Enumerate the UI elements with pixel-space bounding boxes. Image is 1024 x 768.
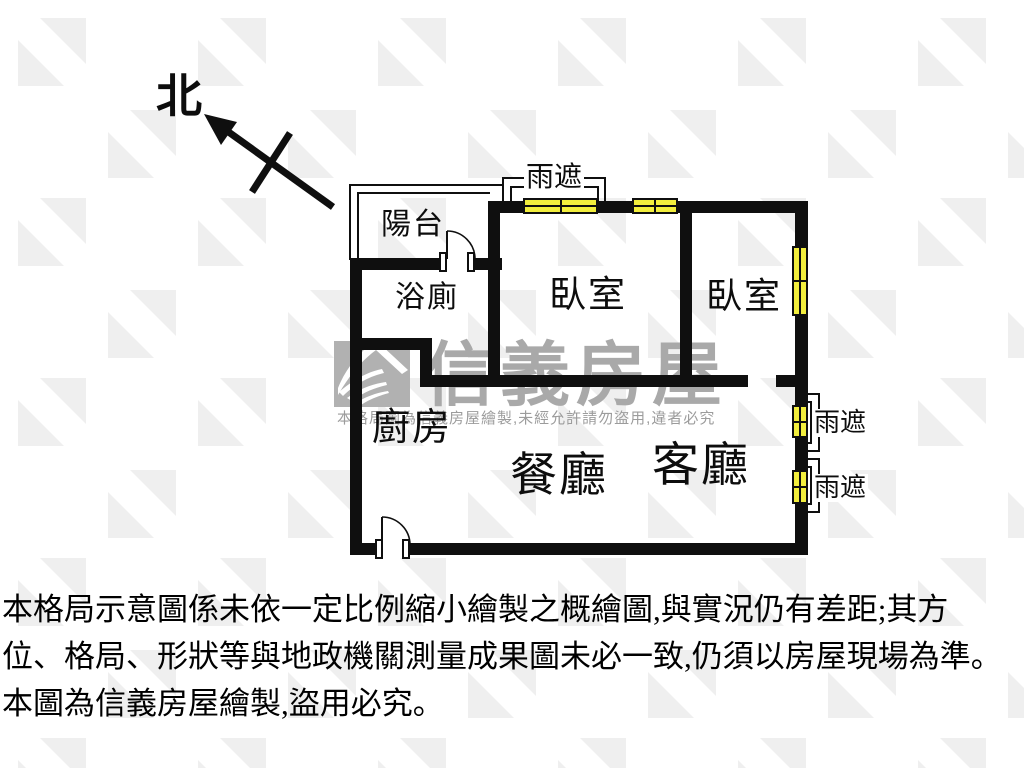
balcony-outline-top-inner <box>357 192 490 194</box>
room-label-balcony: 陽台 <box>381 210 445 240</box>
room-label-bathroom: 浴廁 <box>395 283 459 313</box>
window-right-2 <box>792 405 808 438</box>
balcony-door-jamb-right <box>467 252 475 272</box>
room-label-kitchen: 廚房 <box>372 409 452 447</box>
north-arrow-icon <box>120 60 350 230</box>
balcony-door-jamb-left <box>439 252 447 272</box>
balcony-outline-top-outer <box>349 184 503 186</box>
canopy-label-right-upper: 雨遮 <box>812 409 868 437</box>
kitchen-door-jamb-right <box>402 539 410 559</box>
window-right-1 <box>792 246 808 316</box>
room-label-living: 客廳 <box>652 443 750 490</box>
disclaimer-line-1: 本格局示意圖係未依一定比例縮小繪製之概繪圖,與實況仍有差距;其方 <box>2 586 1022 633</box>
disclaimer-line-3: 本圖為信義房屋繪製,盜用必究。 <box>2 680 1022 727</box>
kitchen-door-jamb-left <box>375 539 383 559</box>
disclaimer-block: 本格局示意圖係未依一定比例縮小繪製之概繪圖,與實況仍有差距;其方 位、格局、形狀… <box>2 586 1022 727</box>
wall-bottom <box>409 543 808 555</box>
wall-bedroom1-left <box>488 201 500 387</box>
wall-bedroom-divider <box>680 201 692 387</box>
balcony-outline-left-inner <box>357 192 359 260</box>
room-label-bedroom1: 臥室 <box>549 277 627 314</box>
wall-living-stub <box>776 375 795 387</box>
window-top-2 <box>632 198 678 214</box>
canopy-label-top: 雨遮 <box>524 163 584 193</box>
window-top-1 <box>523 198 598 214</box>
wall-balcony-bottom-left <box>350 258 442 270</box>
window-right-3 <box>792 470 808 504</box>
floorplan-page: 信義房屋 本格局圖為信義房屋繪製,未經允許請勿盜用,違者必究 北 <box>0 0 1024 768</box>
disclaimer-line-2: 位、格局、形狀等與地政機關測量成果圖未必一致,仍須以房屋現場為準。 <box>2 633 1022 680</box>
room-label-bedroom2: 臥室 <box>706 278 782 314</box>
sinyi-logo-watermark <box>334 341 410 407</box>
wall-hall <box>420 375 748 387</box>
wall-left <box>350 258 362 555</box>
canopy-label-right-lower: 雨遮 <box>812 474 868 502</box>
room-label-dining: 餐廳 <box>510 453 608 500</box>
